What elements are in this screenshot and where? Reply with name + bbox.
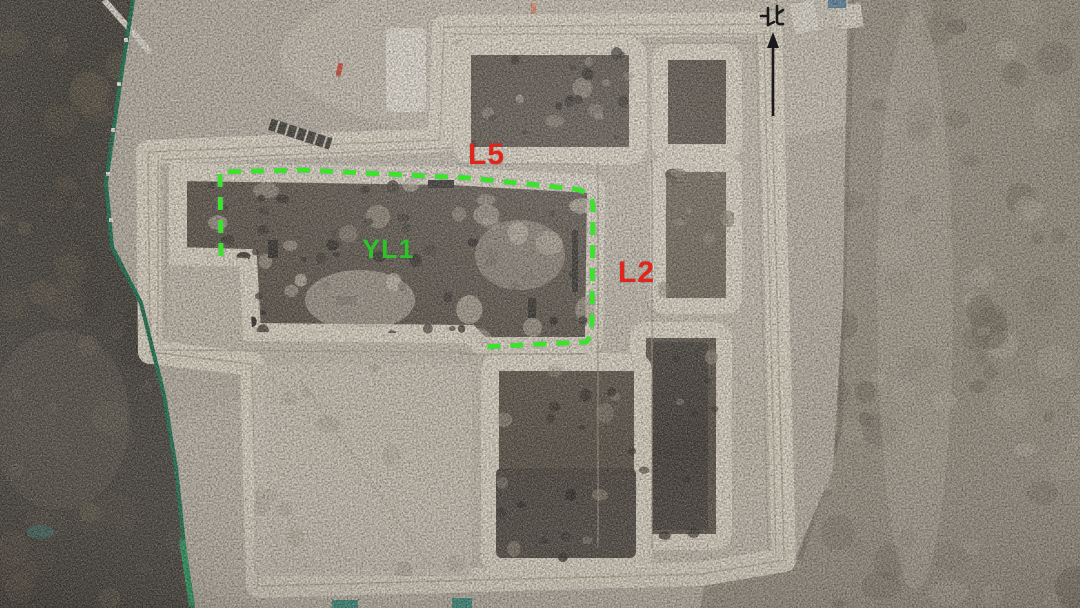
north-label-icon [756,4,790,122]
label-l5: L5 [468,140,505,170]
label-yl1: YL1 [362,236,415,263]
north-indicator [756,4,790,122]
aerial-photo: L5 L2 YL1 [0,0,1080,608]
north-character-bei [761,6,783,25]
label-l2: L2 [618,258,655,288]
grain-light [0,0,1080,608]
north-arrow [767,32,779,116]
site-photo-canvas [0,0,1080,608]
